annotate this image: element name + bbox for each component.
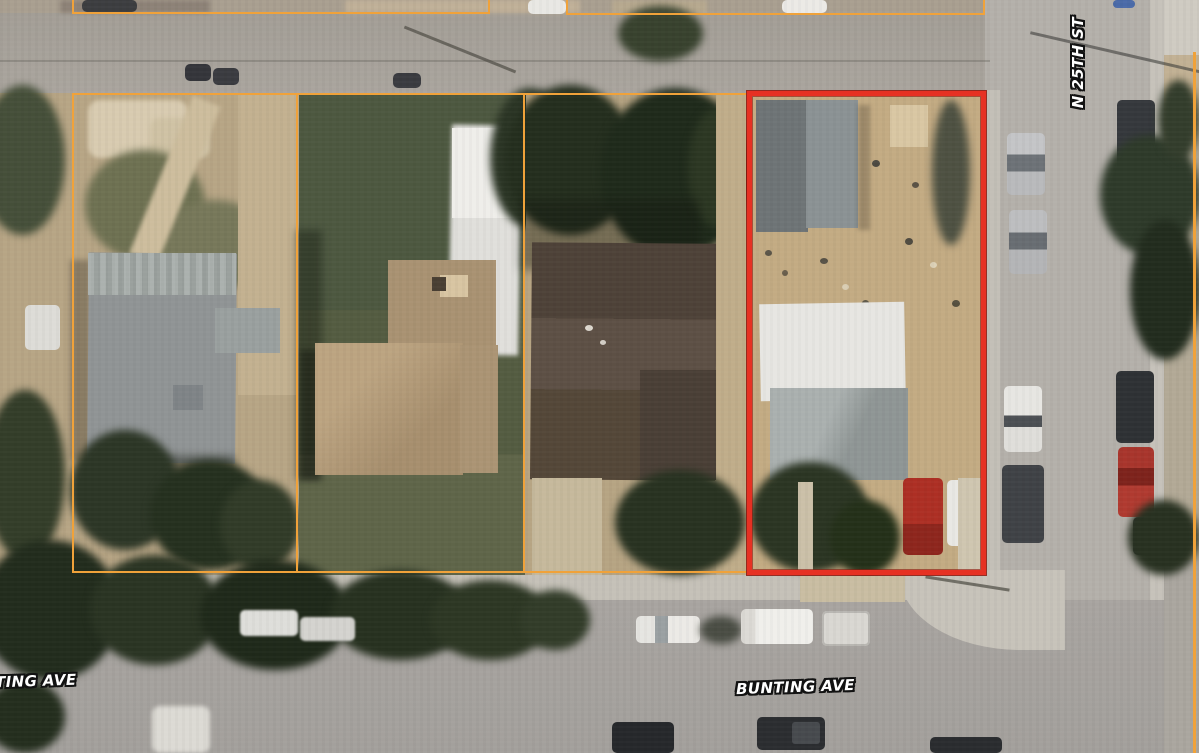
car-silver — [1009, 210, 1047, 274]
car-dark — [393, 73, 421, 88]
satellite-map[interactable]: N 25TH ST BUNTING AVE TING AVE — [0, 0, 1199, 753]
car-dark — [612, 722, 674, 753]
car-dark — [930, 737, 1002, 753]
highlighted-parcel-outline[interactable] — [747, 91, 986, 575]
car-white-sedan — [636, 616, 700, 643]
truck-white-pickup — [1004, 386, 1042, 452]
power-line — [0, 60, 990, 62]
street-label-n-25th-st: N 25TH ST — [1070, 24, 1087, 108]
car-silver — [1007, 133, 1045, 195]
car-dark — [213, 68, 239, 85]
tree — [520, 590, 590, 650]
parcel-outline-top-right[interactable] — [566, 0, 985, 15]
far-right-building-1 — [1164, 0, 1199, 55]
tree-shadow-blob — [700, 616, 742, 644]
parcel-outline-right-edge[interactable] — [1193, 52, 1196, 753]
car-blue — [1113, 0, 1135, 8]
car-dark — [185, 64, 211, 81]
car-white — [528, 0, 566, 14]
trailer-white — [822, 611, 870, 646]
bright-patch — [152, 706, 210, 753]
parcel-outline-main-block[interactable] — [72, 93, 746, 573]
car-white — [25, 305, 60, 350]
street-label-bunting-ave-partial: TING AVE — [0, 672, 77, 691]
van-white — [741, 609, 813, 644]
car-white — [240, 610, 298, 636]
parcel-divider-2[interactable] — [523, 93, 525, 573]
parcel-divider-1[interactable] — [296, 93, 298, 573]
driveway-apron — [800, 576, 905, 602]
pickup-bed — [792, 722, 820, 744]
suv-dark — [1116, 371, 1154, 443]
tree — [1130, 220, 1199, 360]
parcel-outline-top-left[interactable] — [72, 0, 490, 14]
tree — [1128, 500, 1199, 575]
street-label-bunting-ave: BUNTING AVE — [736, 677, 855, 698]
car-dark — [1002, 465, 1044, 543]
curb-right-west — [985, 90, 1000, 582]
car-white — [300, 617, 355, 641]
